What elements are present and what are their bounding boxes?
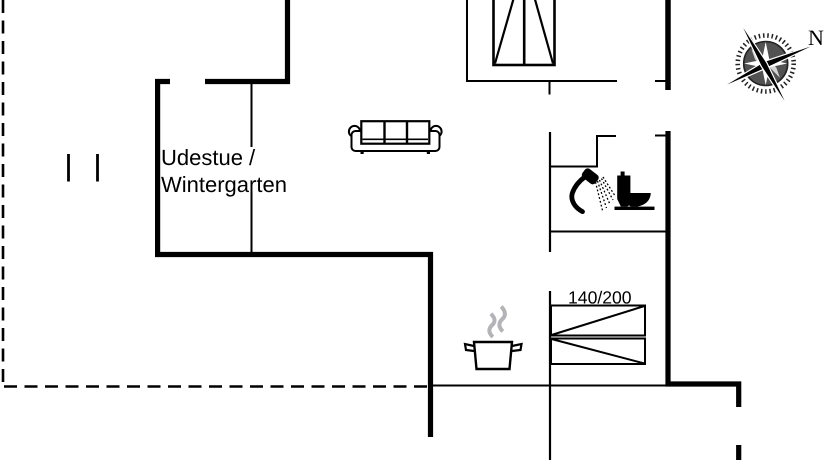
svg-text:N: N xyxy=(808,25,824,50)
svg-text:Udestue /: Udestue / xyxy=(161,145,256,170)
svg-text:Wintergarten: Wintergarten xyxy=(161,172,287,197)
